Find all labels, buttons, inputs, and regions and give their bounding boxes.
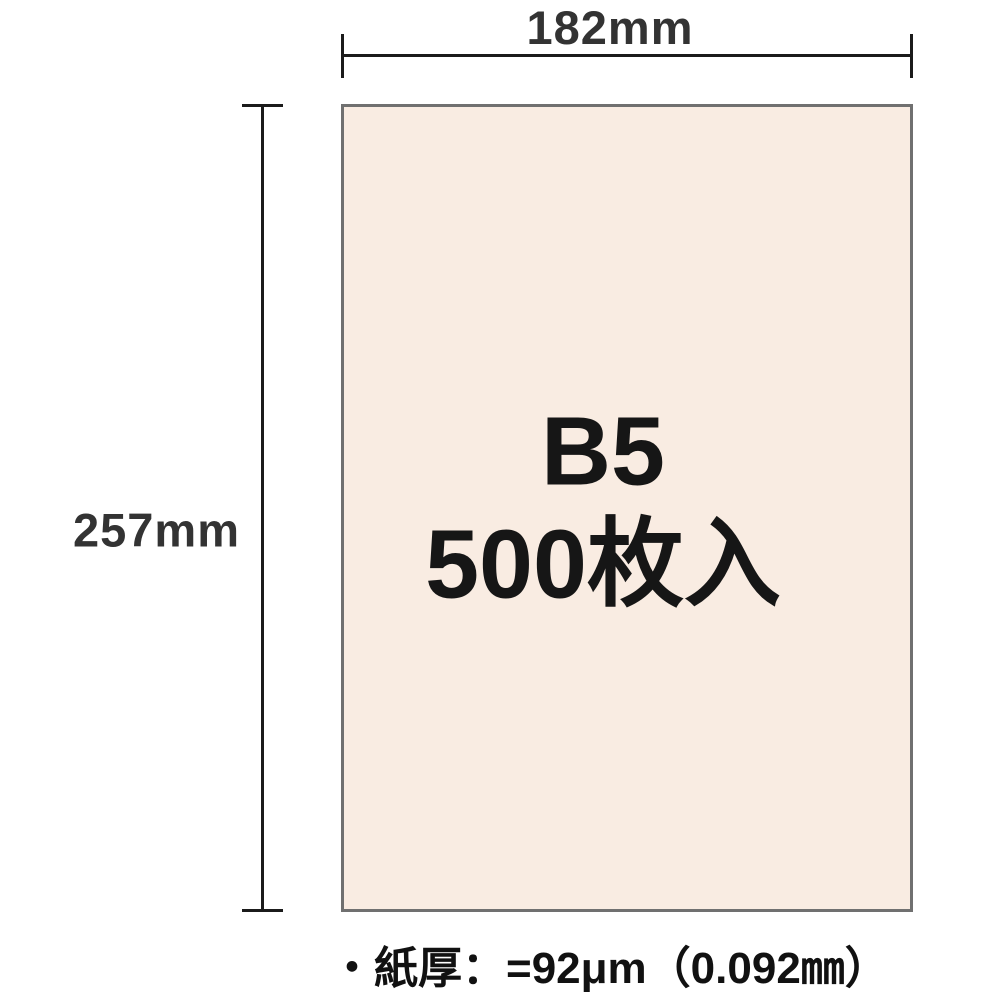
width-dimension-left-tick bbox=[341, 34, 344, 78]
height-dimension-line bbox=[261, 104, 264, 912]
paper-sheet-label: B5 500枚入 bbox=[425, 395, 781, 622]
height-dimension-bottom-tick bbox=[242, 909, 283, 912]
paper-sheet: B5 500枚入 bbox=[341, 104, 913, 912]
height-dimension-label: 257mm bbox=[73, 503, 244, 558]
paper-size-label: B5 bbox=[425, 395, 781, 508]
paper-spec-diagram: 182mm 257mm B5 500枚入 ・紙厚：=92μm（0.092㎜） bbox=[0, 0, 1000, 1000]
width-dimension-right-tick bbox=[910, 34, 913, 78]
width-dimension-label: 182mm bbox=[527, 0, 694, 55]
paper-thickness-caption: ・紙厚：=92μm（0.092㎜） bbox=[330, 932, 889, 996]
width-dimension-line bbox=[343, 54, 912, 57]
paper-count-label: 500枚入 bbox=[425, 508, 781, 621]
height-dimension-top-tick bbox=[242, 104, 283, 107]
